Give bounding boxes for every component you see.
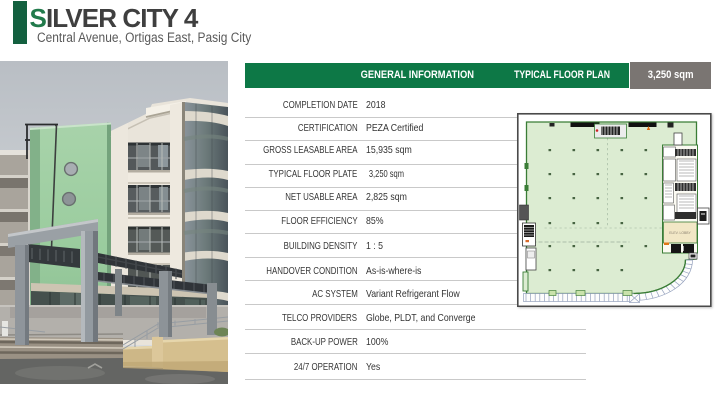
svg-text:ELEV. LOBBY: ELEV. LOBBY <box>669 231 691 235</box>
